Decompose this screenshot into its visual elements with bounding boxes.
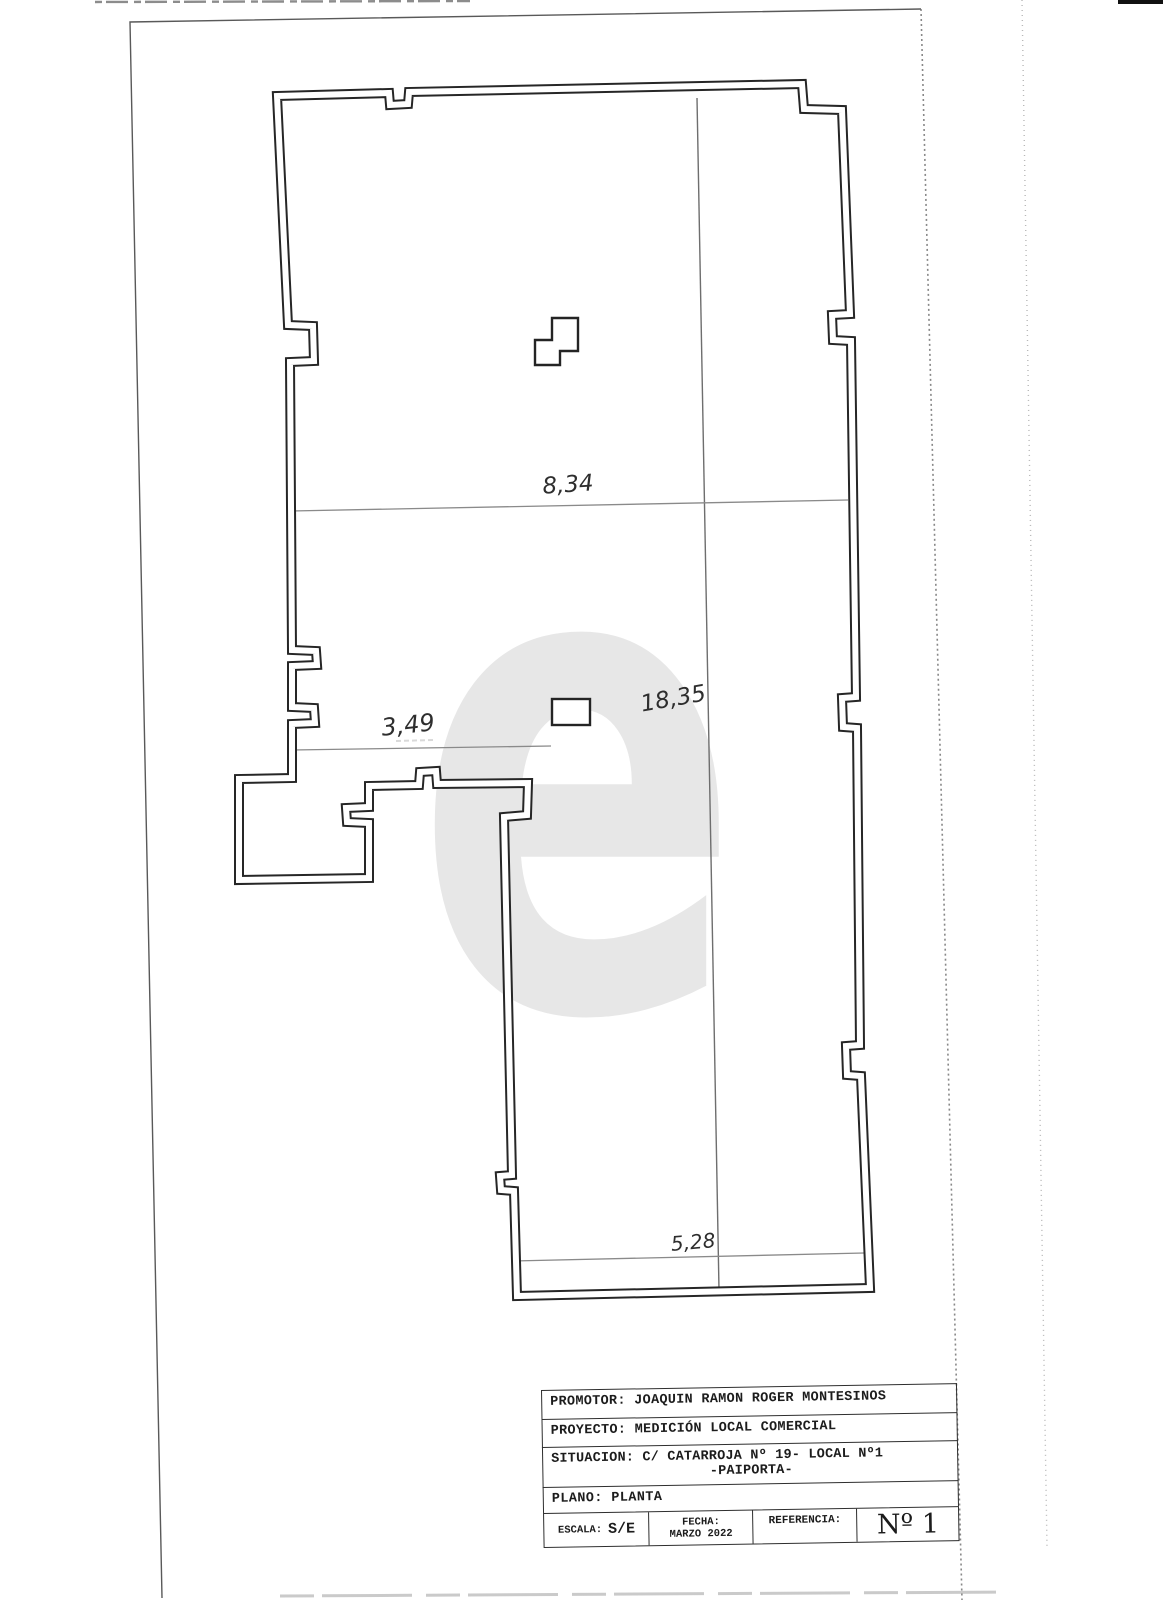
title-block-row-situacion: SITUACION: C/ CATARROJA Nº 19- LOCAL Nº1…	[542, 1440, 959, 1487]
dimension-label-349: 3,49	[380, 708, 436, 741]
referencia-label: REFERENCIA:	[769, 1514, 842, 1527]
proyecto-label: PROYECTO:	[551, 1423, 627, 1439]
title-block: PROMOTOR: JOAQUIN RAMON ROGER MONTESINOS…	[541, 1383, 960, 1548]
proyecto-value: MEDICIÓN LOCAL COMERCIAL	[635, 1419, 837, 1437]
escala-value: S/E	[608, 1520, 635, 1537]
promotor-label: PROMOTOR:	[550, 1394, 626, 1410]
dimension-label-528: 5,28	[670, 1228, 716, 1256]
escala-label: ESCALA:	[558, 1524, 602, 1537]
column-upper	[535, 318, 578, 365]
column-middle	[552, 699, 590, 725]
sheet-number-cell: Nº 1	[857, 1507, 958, 1542]
fecha-cell: FECHA: MARZO 2022	[650, 1511, 754, 1546]
dimension-label-834: 8,34	[542, 470, 595, 500]
page-edge-line	[1022, 0, 1047, 1547]
referencia-cell: REFERENCIA:	[753, 1509, 858, 1544]
sheet-number: Nº 1	[877, 1508, 940, 1540]
promotor-value: JOAQUIN RAMON ROGER MONTESINOS	[634, 1389, 886, 1408]
fecha-value: MARZO 2022	[670, 1527, 733, 1540]
scan-artifact-bottom	[280, 1592, 1010, 1596]
escala-cell: ESCALA: S/E	[544, 1512, 650, 1547]
floor-plan-drawing: e 8,34 18,35 3,49 5,28	[0, 0, 1163, 1600]
scanned-page: e 8,34 18,35 3,49 5,28 PROMOTOR: JOAQUIN…	[0, 0, 1163, 1600]
page-frame-right	[921, 9, 962, 1600]
plano-label: PLANO:	[552, 1491, 603, 1507]
scan-artifact-corner	[1118, 0, 1163, 4]
scan-artifact-top	[95, 1, 470, 2]
situacion-label: SITUACION:	[551, 1450, 634, 1466]
plano-value: PLANTA	[611, 1490, 662, 1506]
title-block-footer: ESCALA: S/E FECHA: MARZO 2022 REFERENCIA…	[543, 1506, 960, 1548]
fecha-label: FECHA:	[682, 1516, 720, 1529]
